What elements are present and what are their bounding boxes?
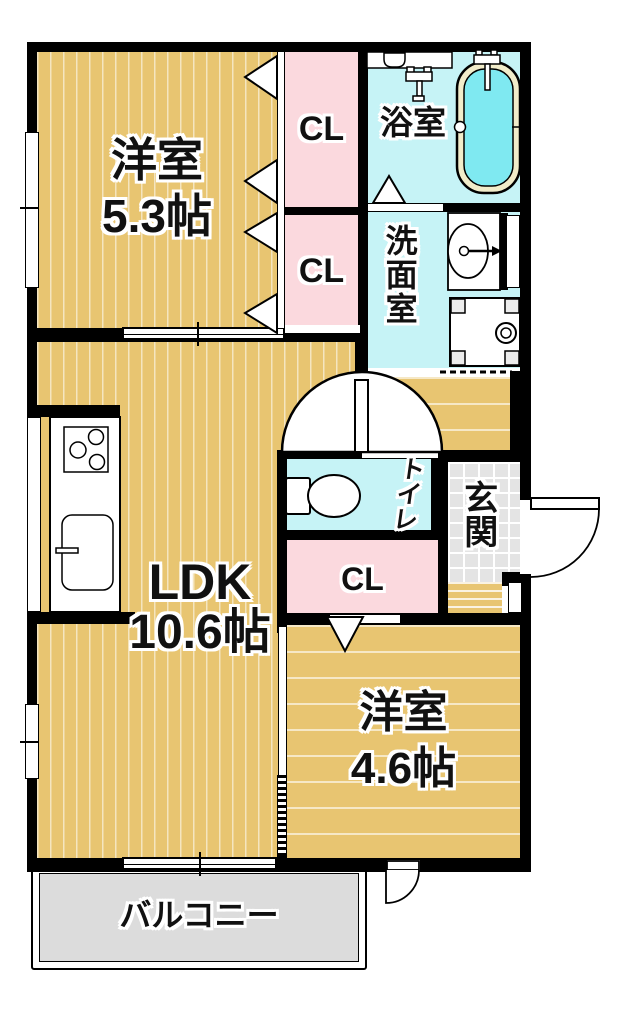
- washbasin-icon: [448, 213, 502, 290]
- label-entrance: 玄関: [459, 480, 495, 548]
- folding-door-icon: [245, 56, 277, 99]
- label-washroom: 洗面室: [382, 224, 416, 326]
- label-bathroom: 浴室: [368, 106, 458, 141]
- folding-door-icon: [245, 294, 277, 333]
- toilet-icon: [286, 475, 360, 517]
- label-bedroom46-name: 洋室: [287, 690, 520, 736]
- label-balcony: バルコニー: [40, 899, 358, 933]
- floor-plan: 洋室 5.3帖 CL CL 浴室 洗面室 トイレ 玄関 CL LDK 10.6帖…: [0, 0, 633, 1015]
- shower-faucet-icon: [406, 67, 432, 101]
- label-ldk-name: LDK: [60, 556, 340, 609]
- label-bedroom53-size: 5.3帖: [37, 192, 277, 240]
- bathroom-door-icon: [373, 176, 405, 203]
- label-ldk-size: 10.6帖: [60, 608, 340, 658]
- bath-counter-icon: [367, 52, 452, 68]
- label-bedroom53-name: 洋室: [37, 136, 277, 184]
- ldk-door-leaf-icon: [355, 380, 368, 452]
- kitchen-faucet-icon: [56, 548, 78, 553]
- washing-machine-pan-icon: [450, 298, 520, 366]
- bath-basin-icon: [384, 53, 405, 67]
- bedroom46-door-arc-icon: [386, 870, 419, 903]
- label-closet-upper: CL: [285, 112, 358, 148]
- label-bedroom46-size: 4.6帖: [287, 746, 520, 792]
- entrance-door-arc-icon: [531, 509, 599, 577]
- bedroom46-door-leaf-icon: [387, 861, 419, 870]
- entrance-door-leaf-icon: [531, 498, 599, 509]
- label-closet-lower: CL: [285, 254, 358, 290]
